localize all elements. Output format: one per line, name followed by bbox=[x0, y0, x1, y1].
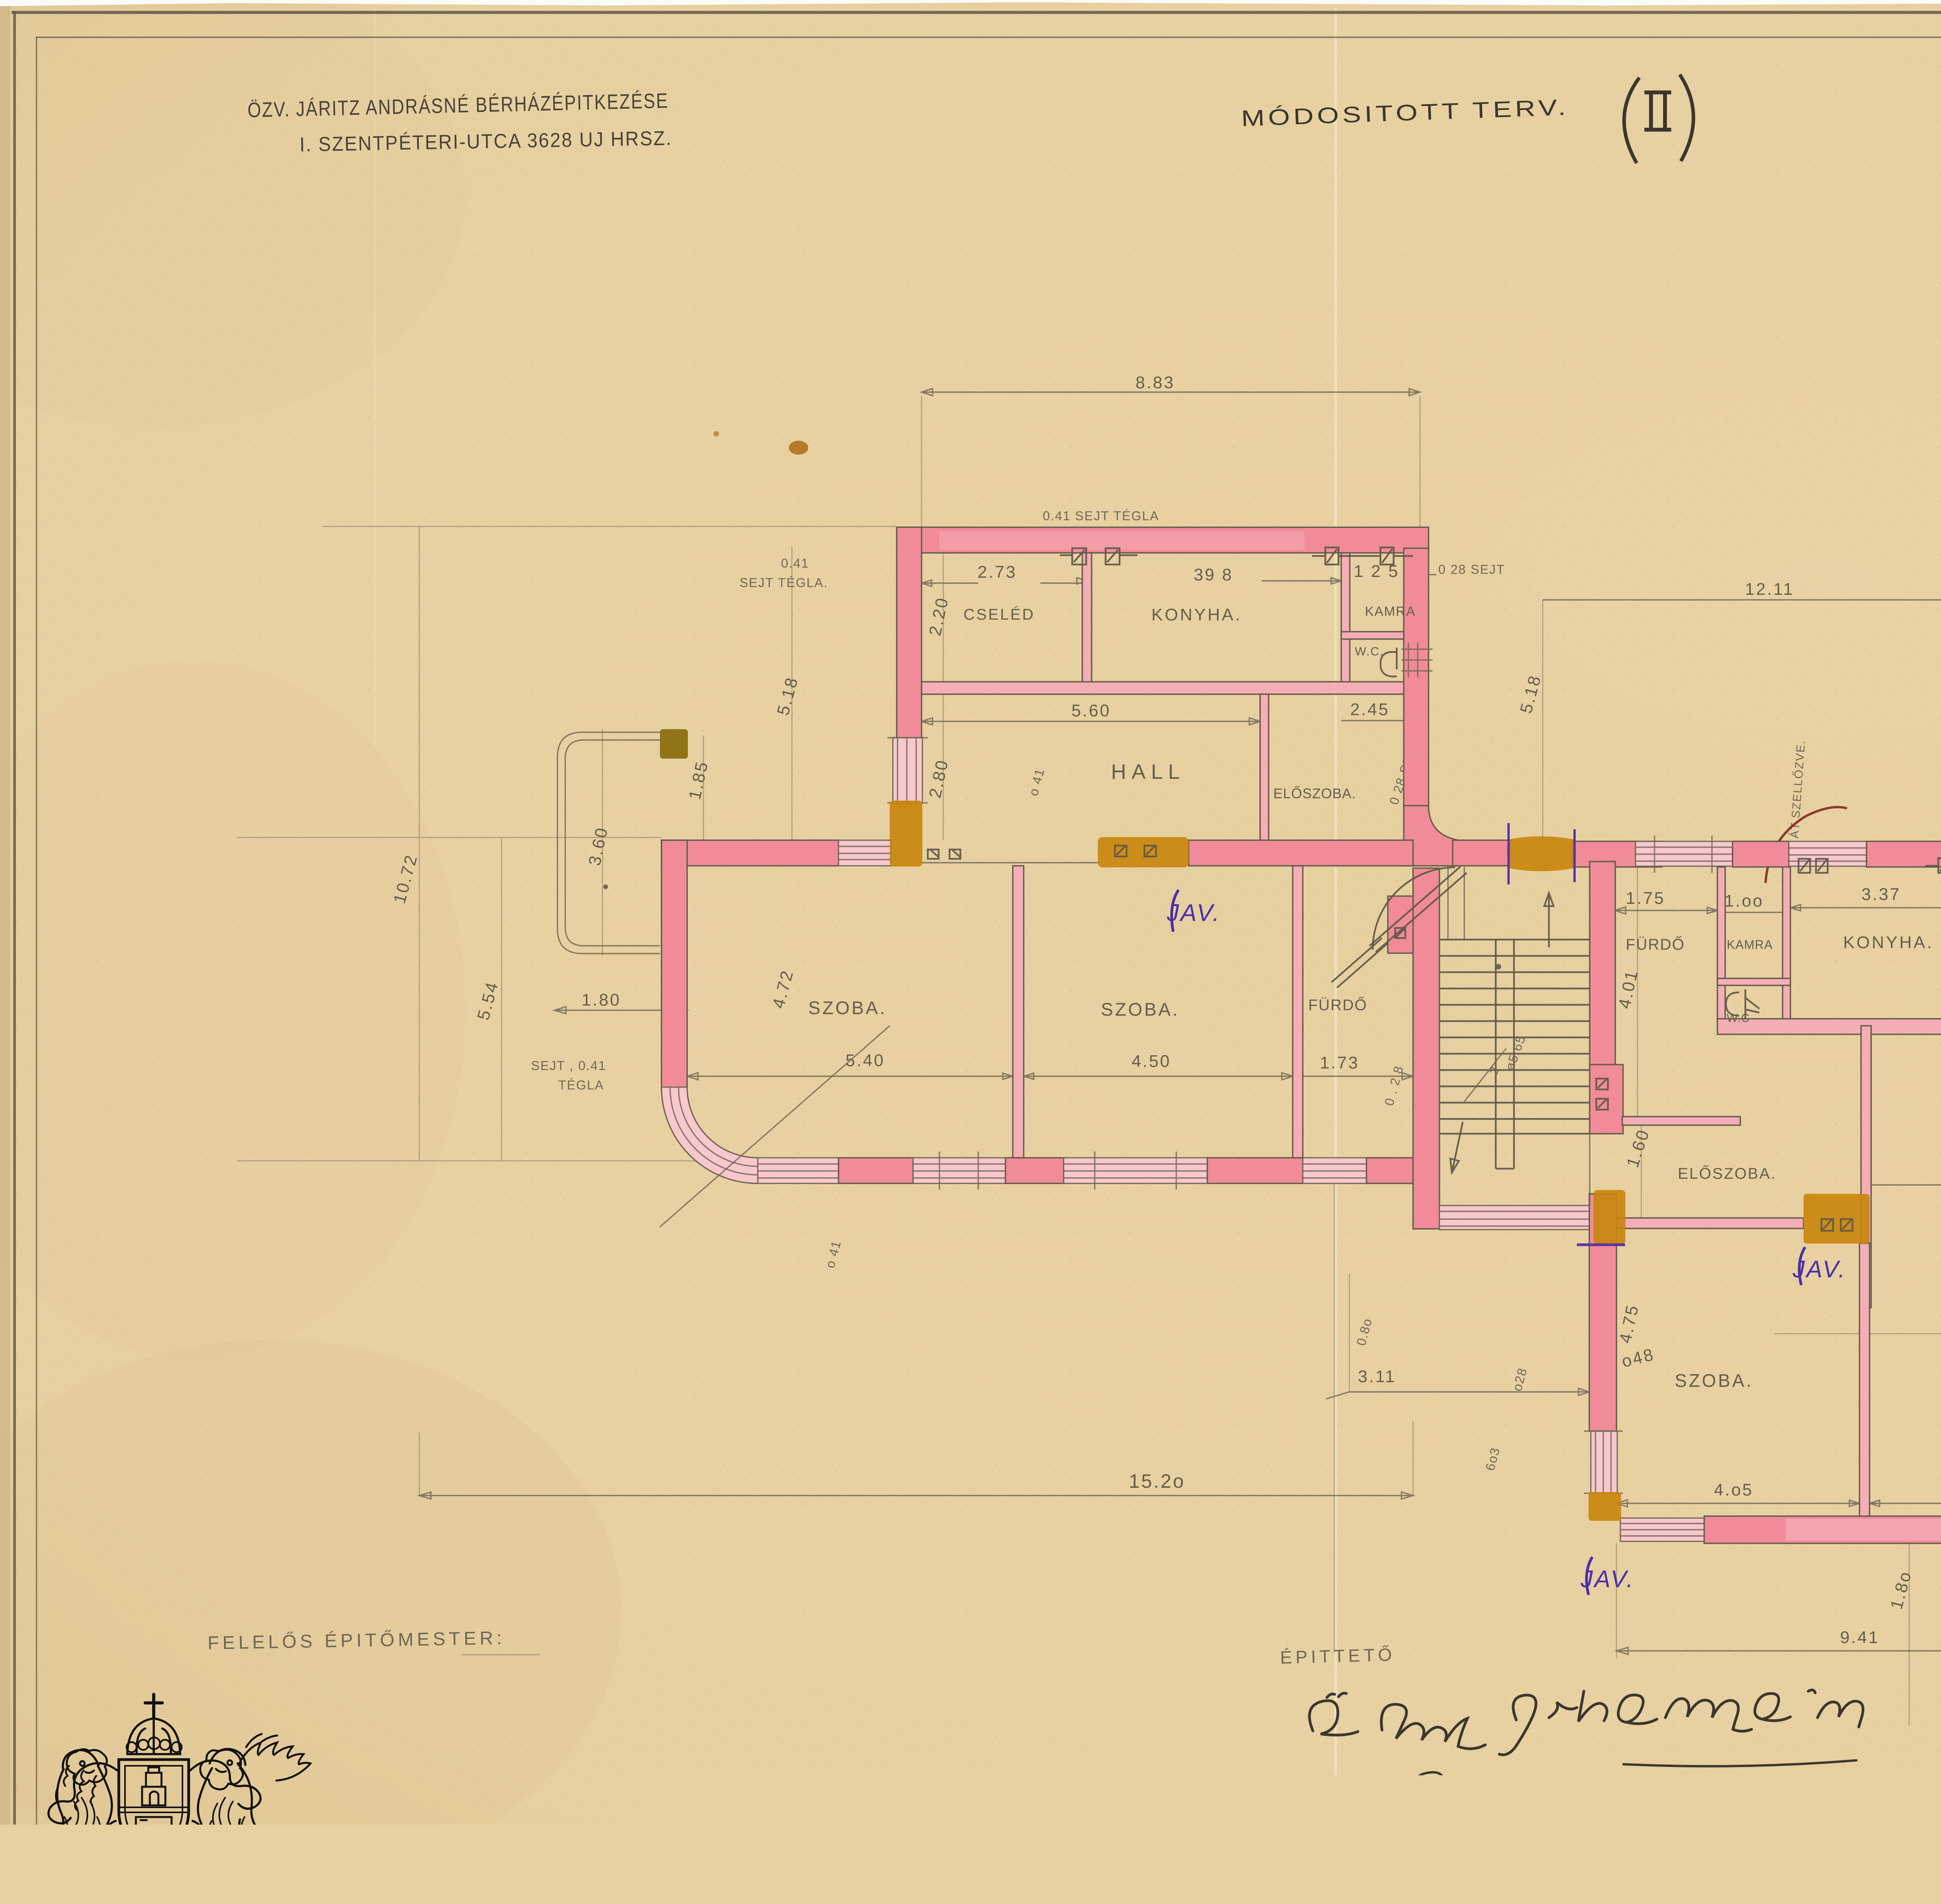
svg-text:W.C.: W.C. bbox=[1355, 645, 1384, 658]
svg-text:KONYHA.: KONYHA. bbox=[1843, 933, 1934, 952]
svg-text:9.41: 9.41 bbox=[1840, 1628, 1880, 1647]
svg-text:CSELÉD: CSELÉD bbox=[964, 606, 1035, 623]
svg-text:0 28 SEJT: 0 28 SEJT bbox=[1438, 562, 1505, 577]
svg-text:5.40: 5.40 bbox=[845, 1051, 885, 1070]
svg-text:0.41 SEJT TÉGLA: 0.41 SEJT TÉGLA bbox=[1043, 509, 1159, 523]
svg-text:FÜRDŐ: FÜRDŐ bbox=[1308, 996, 1367, 1014]
svg-text:4.o5: 4.o5 bbox=[1714, 1480, 1753, 1499]
svg-text:SZOBA.: SZOBA. bbox=[1101, 999, 1179, 1020]
svg-text:0.41: 0.41 bbox=[781, 556, 809, 570]
svg-text:2.73: 2.73 bbox=[977, 563, 1017, 582]
svg-text:1.75: 1.75 bbox=[1626, 889, 1665, 908]
svg-text:12.11: 12.11 bbox=[1745, 580, 1794, 599]
svg-text:1.73: 1.73 bbox=[1320, 1053, 1359, 1072]
svg-text:KONYHA.: KONYHA. bbox=[1151, 605, 1242, 624]
svg-text:3.37: 3.37 bbox=[1861, 885, 1901, 904]
svg-text:8.83: 8.83 bbox=[1135, 373, 1175, 392]
svg-text:W.C: W.C bbox=[1727, 1012, 1750, 1025]
svg-text:ÉPITTETŐ: ÉPITTETŐ bbox=[1280, 1644, 1396, 1668]
svg-text:15.2o: 15.2o bbox=[1129, 1470, 1185, 1492]
svg-text:ELŐSZOBA.: ELŐSZOBA. bbox=[1273, 785, 1356, 801]
svg-text:4.50: 4.50 bbox=[1132, 1052, 1171, 1071]
svg-text:FÜRDŐ: FÜRDŐ bbox=[1626, 936, 1685, 953]
svg-text:SZOBA.: SZOBA. bbox=[808, 997, 887, 1018]
svg-text:KAMRA: KAMRA bbox=[1727, 938, 1773, 952]
svg-text:1.80: 1.80 bbox=[582, 990, 621, 1009]
svg-text:TÉGLA: TÉGLA bbox=[558, 1078, 604, 1092]
svg-text:1.oo: 1.oo bbox=[1724, 891, 1764, 910]
svg-text:39 8: 39 8 bbox=[1194, 565, 1233, 584]
svg-text:5.60: 5.60 bbox=[1071, 701, 1111, 720]
svg-text:3.11: 3.11 bbox=[1358, 1367, 1396, 1386]
svg-text:SEJT , 0.41: SEJT , 0.41 bbox=[531, 1058, 606, 1073]
svg-text:SEJT TÉGLA.: SEJT TÉGLA. bbox=[740, 575, 828, 590]
svg-text:ELŐSZOBA.: ELŐSZOBA. bbox=[1678, 1165, 1776, 1182]
svg-text:Budapest Főváros Levéltára: Budapest Főváros Levéltára bbox=[40, 1868, 268, 1894]
svg-text:SZOBA.: SZOBA. bbox=[1675, 1370, 1753, 1391]
svg-text:KAMRA: KAMRA bbox=[1365, 604, 1416, 619]
svg-text:HALL: HALL bbox=[1111, 760, 1185, 783]
svg-text:2.45: 2.45 bbox=[1350, 700, 1390, 719]
svg-text:JAV.: JAV. bbox=[1167, 900, 1221, 926]
